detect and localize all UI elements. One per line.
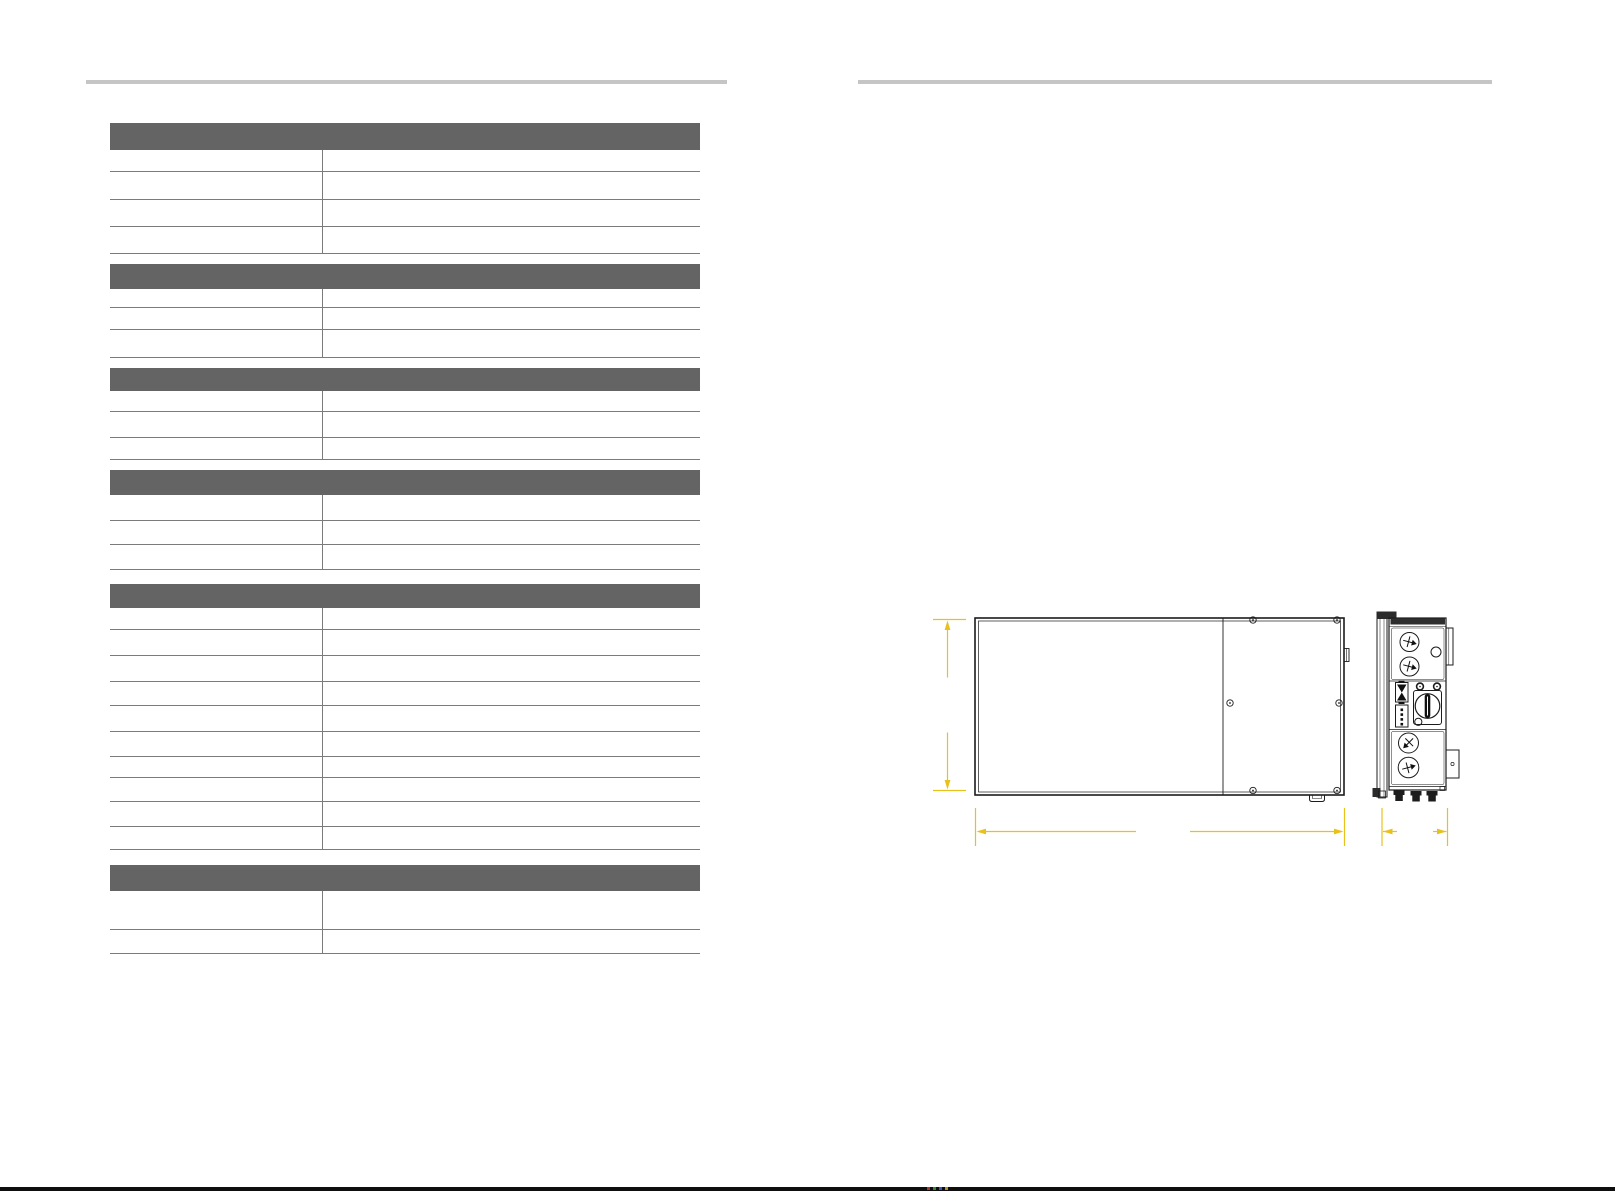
front-view xyxy=(975,617,1349,802)
parameter-cell xyxy=(110,682,322,705)
value-cell xyxy=(322,521,700,544)
middle-section xyxy=(1396,681,1442,728)
front-screws xyxy=(1227,617,1342,794)
left-page-top-rule xyxy=(86,80,727,84)
parameter-cell xyxy=(110,150,322,171)
table-row xyxy=(110,802,700,827)
vent-port xyxy=(1431,647,1441,657)
section-header-bar xyxy=(110,123,700,150)
parameter-cell xyxy=(110,732,322,756)
parameter-cell xyxy=(110,827,322,849)
table-row xyxy=(110,630,700,656)
clipped-footer-banner xyxy=(0,1187,1615,1191)
spec-section-1 xyxy=(110,123,700,254)
side-view xyxy=(1373,612,1460,802)
table-row xyxy=(110,545,700,570)
manual-spread-page xyxy=(0,0,1615,1191)
table-row xyxy=(110,227,700,254)
table-row xyxy=(110,732,700,757)
section-header-bar xyxy=(110,584,700,608)
table-row xyxy=(110,778,700,802)
parameter-cell xyxy=(110,289,322,307)
footer-color-speck xyxy=(939,1187,942,1190)
mounting-rail xyxy=(1373,612,1397,799)
dimension-width xyxy=(976,808,1345,846)
value-cell xyxy=(322,757,700,777)
parameter-cell xyxy=(110,545,322,569)
table-row xyxy=(110,172,700,200)
ac-ports-top xyxy=(1400,633,1441,677)
side-body xyxy=(1389,618,1446,790)
top-bracket xyxy=(1446,628,1453,665)
value-cell xyxy=(322,706,700,731)
enclosure-inner-frame xyxy=(979,621,1341,792)
table-row xyxy=(110,391,700,412)
parameter-cell xyxy=(110,656,322,681)
technical-drawing xyxy=(900,580,1500,870)
top-edge-band xyxy=(1391,619,1446,625)
bottom-tab xyxy=(1310,796,1325,802)
value-cell xyxy=(322,412,700,437)
dimension-lines xyxy=(933,620,1448,847)
parameter-cell xyxy=(110,608,322,629)
table-row xyxy=(110,706,700,732)
rail-foot xyxy=(1373,788,1381,797)
footer-color-speck xyxy=(933,1187,936,1190)
value-cell xyxy=(322,438,700,459)
parameter-cell xyxy=(110,227,322,253)
dc-switch xyxy=(1414,691,1442,726)
value-cell xyxy=(322,682,700,705)
value-cell xyxy=(322,227,700,253)
value-cell xyxy=(322,495,700,520)
parameter-cell xyxy=(110,200,322,226)
section-header-bar xyxy=(110,470,700,495)
terminal-block xyxy=(1396,705,1409,727)
parameter-cell xyxy=(110,412,322,437)
value-cell xyxy=(322,150,700,171)
table-row xyxy=(110,930,700,954)
spec-table xyxy=(110,123,700,954)
value-cell xyxy=(322,802,700,826)
table-row xyxy=(110,656,700,682)
value-cell xyxy=(322,827,700,849)
parameter-cell xyxy=(110,172,322,199)
table-row xyxy=(110,682,700,706)
spec-section-2 xyxy=(110,264,700,358)
section-header-bar xyxy=(110,865,700,891)
ac-ports-bottom xyxy=(1398,733,1419,778)
value-cell xyxy=(322,200,700,226)
value-cell xyxy=(322,289,700,307)
cable-glands xyxy=(1394,787,1445,802)
table-row xyxy=(110,521,700,545)
parameter-cell xyxy=(110,802,322,826)
parameter-cell xyxy=(110,706,322,731)
spec-section-3 xyxy=(110,368,700,460)
value-cell xyxy=(322,608,700,629)
table-row xyxy=(110,289,700,308)
parameter-cell xyxy=(110,757,322,777)
panel-screws xyxy=(1417,683,1441,690)
parameter-cell xyxy=(110,891,322,929)
value-cell xyxy=(322,891,700,929)
table-row xyxy=(110,308,700,330)
value-cell xyxy=(322,656,700,681)
value-cell xyxy=(322,172,700,199)
parameter-cell xyxy=(110,308,322,329)
dimension-depth xyxy=(1382,808,1448,846)
value-cell xyxy=(322,308,700,329)
dimension-height xyxy=(933,620,966,791)
footer-color-speck xyxy=(945,1187,948,1190)
value-cell xyxy=(322,778,700,801)
parameter-cell xyxy=(110,630,322,655)
enclosure-outline xyxy=(975,618,1344,795)
parameter-cell xyxy=(110,778,322,801)
value-cell xyxy=(322,545,700,569)
table-row xyxy=(110,438,700,460)
parameter-cell xyxy=(110,391,322,411)
table-row xyxy=(110,495,700,521)
value-cell xyxy=(322,391,700,411)
table-row xyxy=(110,757,700,778)
value-cell xyxy=(322,930,700,953)
table-row xyxy=(110,891,700,930)
spec-section-6 xyxy=(110,865,700,954)
parameter-cell xyxy=(110,521,322,544)
table-row xyxy=(110,150,700,172)
table-row xyxy=(110,608,700,630)
dc-connector xyxy=(1396,681,1409,705)
table-row xyxy=(110,412,700,438)
bottom-bracket xyxy=(1446,750,1459,778)
right-page-top-rule xyxy=(858,80,1492,84)
parameter-cell xyxy=(110,330,322,357)
table-row xyxy=(110,827,700,850)
section-header-bar xyxy=(110,264,700,289)
parameter-cell xyxy=(110,438,322,459)
spec-section-5 xyxy=(110,584,700,850)
parameter-cell xyxy=(110,495,322,520)
parameter-cell xyxy=(110,930,322,953)
table-row xyxy=(110,200,700,227)
table-row xyxy=(110,330,700,358)
value-cell xyxy=(322,630,700,655)
value-cell xyxy=(322,732,700,756)
section-header-bar xyxy=(110,368,700,391)
footer-color-speck xyxy=(927,1187,930,1190)
value-cell xyxy=(322,330,700,357)
spec-section-4 xyxy=(110,470,700,570)
